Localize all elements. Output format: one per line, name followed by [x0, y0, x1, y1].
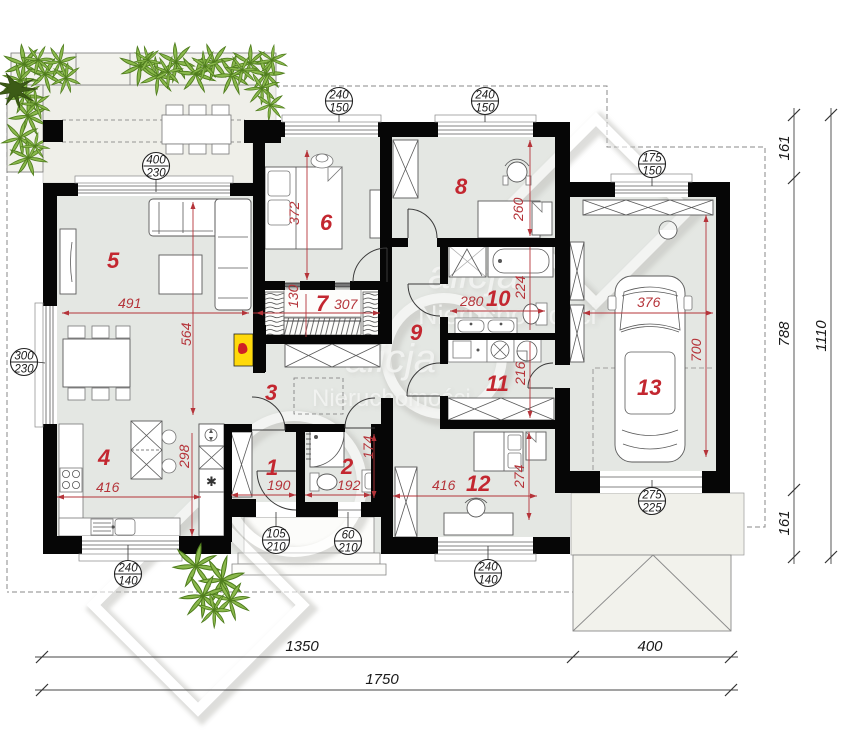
- svg-text:4: 4: [97, 445, 110, 470]
- svg-text:416: 416: [432, 477, 456, 493]
- svg-text:225: 225: [641, 503, 662, 515]
- svg-text:1750: 1750: [365, 671, 399, 688]
- svg-text:1: 1: [266, 455, 278, 480]
- svg-text:280: 280: [459, 293, 484, 309]
- svg-text:2: 2: [340, 454, 354, 479]
- svg-text:8: 8: [455, 174, 468, 199]
- svg-text:140: 140: [478, 575, 498, 587]
- svg-text:300: 300: [14, 351, 34, 363]
- svg-text:161: 161: [776, 135, 793, 160]
- svg-text:9: 9: [410, 320, 423, 345]
- svg-text:307: 307: [334, 296, 359, 312]
- svg-text:192: 192: [337, 477, 361, 493]
- svg-text:240: 240: [328, 90, 349, 102]
- svg-text:105: 105: [266, 529, 286, 541]
- svg-text:700: 700: [688, 338, 704, 362]
- svg-text:7: 7: [316, 291, 330, 316]
- svg-text:275: 275: [641, 490, 662, 502]
- svg-text:416: 416: [96, 479, 120, 495]
- svg-text:150: 150: [329, 103, 349, 115]
- svg-text:240: 240: [474, 90, 495, 102]
- svg-text:400: 400: [637, 638, 663, 655]
- svg-text:274: 274: [511, 464, 527, 489]
- svg-text:224: 224: [512, 275, 528, 300]
- svg-text:210: 210: [337, 543, 358, 555]
- svg-text:161: 161: [776, 510, 793, 535]
- svg-text:1350: 1350: [285, 638, 319, 655]
- svg-text:13: 13: [637, 375, 661, 400]
- svg-text:150: 150: [642, 166, 662, 178]
- svg-text:240: 240: [477, 562, 498, 574]
- svg-text:372: 372: [286, 201, 302, 225]
- svg-text:5: 5: [107, 248, 120, 273]
- svg-text:564: 564: [178, 322, 194, 346]
- svg-text:140: 140: [118, 576, 138, 588]
- svg-text:240: 240: [117, 563, 138, 575]
- svg-text:10: 10: [486, 286, 511, 311]
- svg-text:788: 788: [776, 321, 793, 347]
- svg-text:1110: 1110: [813, 320, 830, 352]
- svg-text:491: 491: [118, 295, 141, 311]
- svg-text:260: 260: [510, 197, 526, 222]
- svg-text:✱: ✱: [206, 474, 217, 489]
- svg-text:230: 230: [13, 364, 34, 376]
- svg-text:12: 12: [466, 471, 491, 496]
- svg-text:150: 150: [475, 103, 495, 115]
- svg-text:60: 60: [342, 530, 355, 542]
- svg-text:210: 210: [265, 542, 286, 554]
- svg-text:11: 11: [486, 371, 509, 396]
- svg-text:298: 298: [176, 444, 192, 469]
- svg-text:216: 216: [512, 361, 528, 386]
- svg-text:3: 3: [265, 380, 277, 405]
- svg-text:175: 175: [642, 153, 662, 165]
- svg-text:230: 230: [145, 168, 166, 180]
- svg-text:174: 174: [360, 435, 376, 459]
- svg-text:376: 376: [637, 294, 661, 310]
- svg-text:130: 130: [285, 284, 301, 308]
- svg-text:400: 400: [146, 155, 166, 167]
- svg-text:6: 6: [320, 210, 333, 235]
